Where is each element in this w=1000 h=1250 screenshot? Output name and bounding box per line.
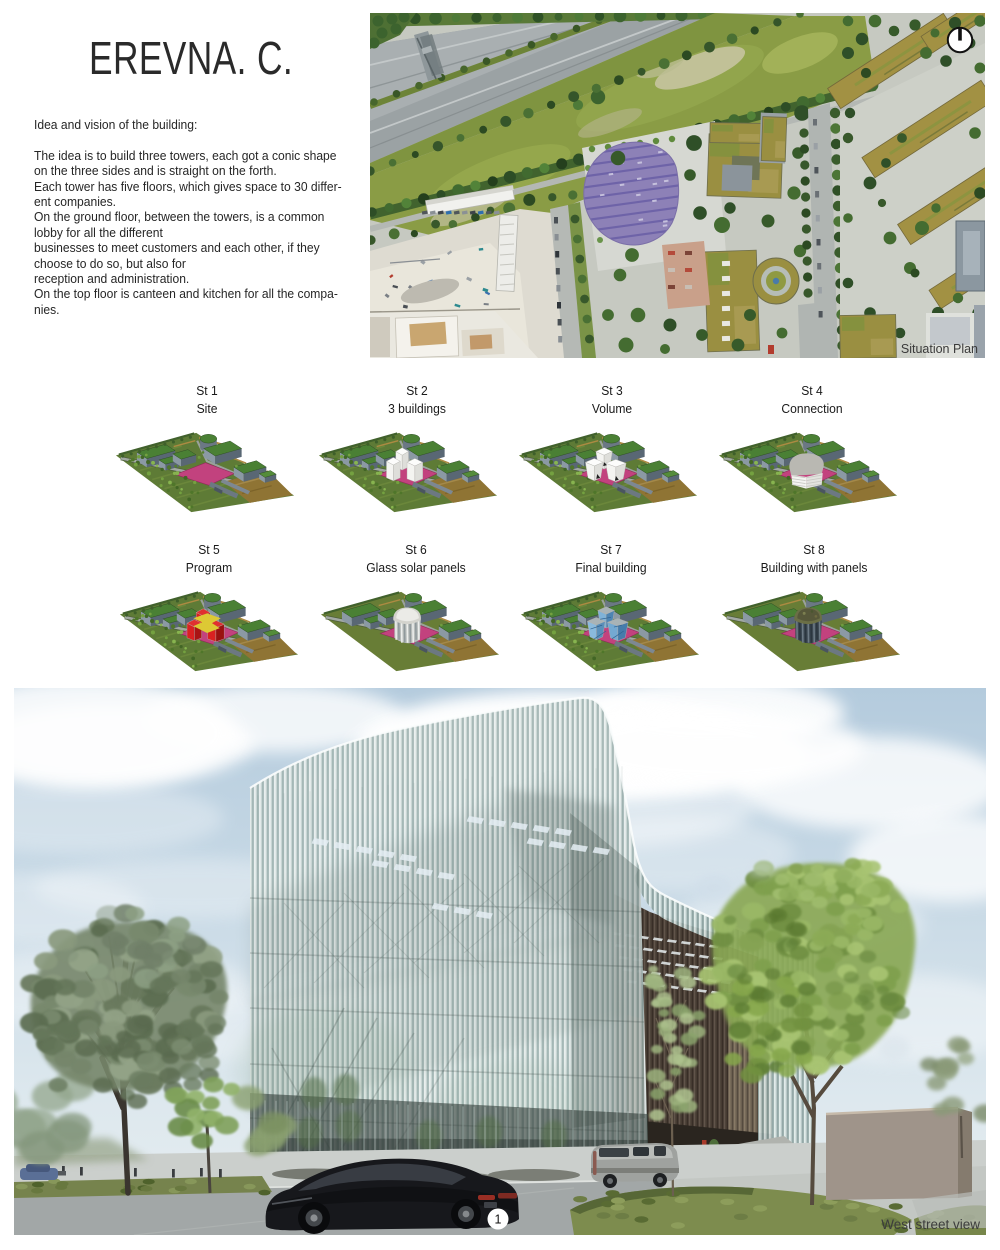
svg-text:Situation Plan: Situation Plan: [901, 342, 978, 356]
svg-text:West street view: West street view: [881, 1217, 980, 1232]
svg-text:1: 1: [495, 1213, 502, 1227]
